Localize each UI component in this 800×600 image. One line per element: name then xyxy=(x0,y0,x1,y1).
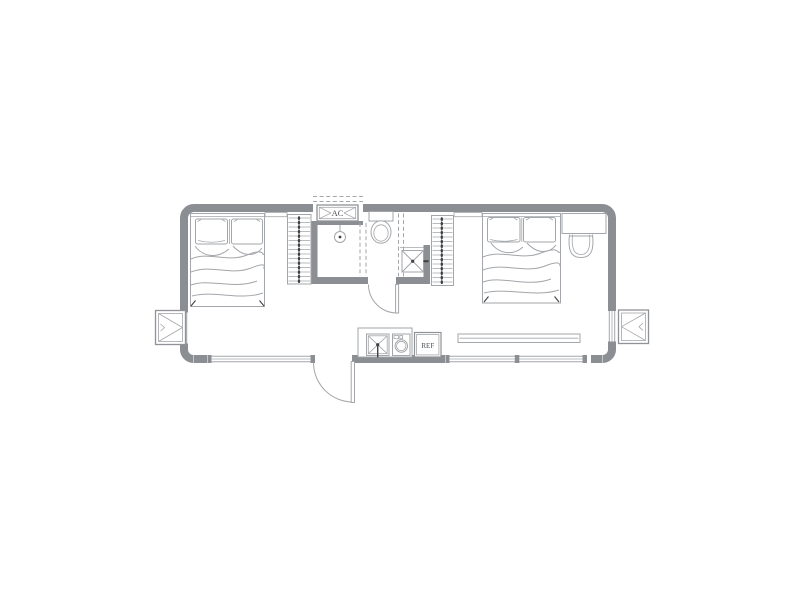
door-leaf xyxy=(396,285,399,314)
platform-outer xyxy=(156,311,186,345)
window-side-right xyxy=(608,307,616,346)
wall-bath-bottom-left xyxy=(311,277,368,284)
chair xyxy=(569,235,593,258)
door-swing-arc xyxy=(369,285,398,314)
wall-ledge-right xyxy=(454,213,482,217)
window-post xyxy=(311,355,316,363)
shower-center-dot xyxy=(339,236,342,239)
toilet xyxy=(369,212,393,244)
double-bed-right xyxy=(483,214,562,304)
fridge-label: REF xyxy=(421,342,434,350)
wall-right-upper xyxy=(608,218,616,311)
entry-door xyxy=(314,362,355,403)
ac-platform-right xyxy=(619,310,649,344)
kitchen: REF xyxy=(358,328,580,358)
wall-left-upper xyxy=(180,218,188,312)
ac-unit-label: AC xyxy=(332,208,344,218)
bathroom-door xyxy=(369,285,399,314)
wall-top-left xyxy=(194,204,313,212)
floor-plan-canvas: AC xyxy=(0,0,800,600)
refrigerator: REF xyxy=(415,333,442,358)
toilet-tank xyxy=(369,212,393,222)
desk xyxy=(562,214,606,234)
wall-ledge-left xyxy=(265,213,287,217)
basin-drain-dot xyxy=(411,260,414,263)
wardrobe-right xyxy=(432,216,454,286)
wall-top-right xyxy=(363,204,602,212)
window-post xyxy=(608,342,616,346)
window-post xyxy=(583,355,588,363)
shower-glass-partition xyxy=(360,223,366,276)
door-leaf xyxy=(351,362,354,403)
shower-head-icon xyxy=(335,225,346,243)
floor-plan-drawing: AC xyxy=(0,0,800,600)
niche-dashed-boundary xyxy=(313,197,363,202)
window-bottom-left xyxy=(207,355,315,363)
double-bed-left xyxy=(191,214,265,307)
corner-bottom-right xyxy=(603,350,613,360)
corner-bottom-left xyxy=(184,350,194,360)
desk-outline xyxy=(562,214,606,234)
window-mullion xyxy=(515,355,520,363)
ac-unit: AC xyxy=(317,205,358,221)
bathroom xyxy=(335,212,429,314)
tv-bench xyxy=(458,334,580,343)
wall-shower-left xyxy=(311,221,318,284)
window-post xyxy=(446,355,450,363)
wall-basin-right xyxy=(424,245,431,284)
ac-niche: AC xyxy=(313,197,363,222)
wardrobe-left xyxy=(288,215,312,285)
door-swing-arc xyxy=(314,363,354,403)
window-post xyxy=(208,355,212,363)
window-post xyxy=(608,307,616,311)
ac-platform-left xyxy=(156,311,186,345)
platform-outer xyxy=(619,310,649,344)
window-bottom-right xyxy=(445,355,591,363)
